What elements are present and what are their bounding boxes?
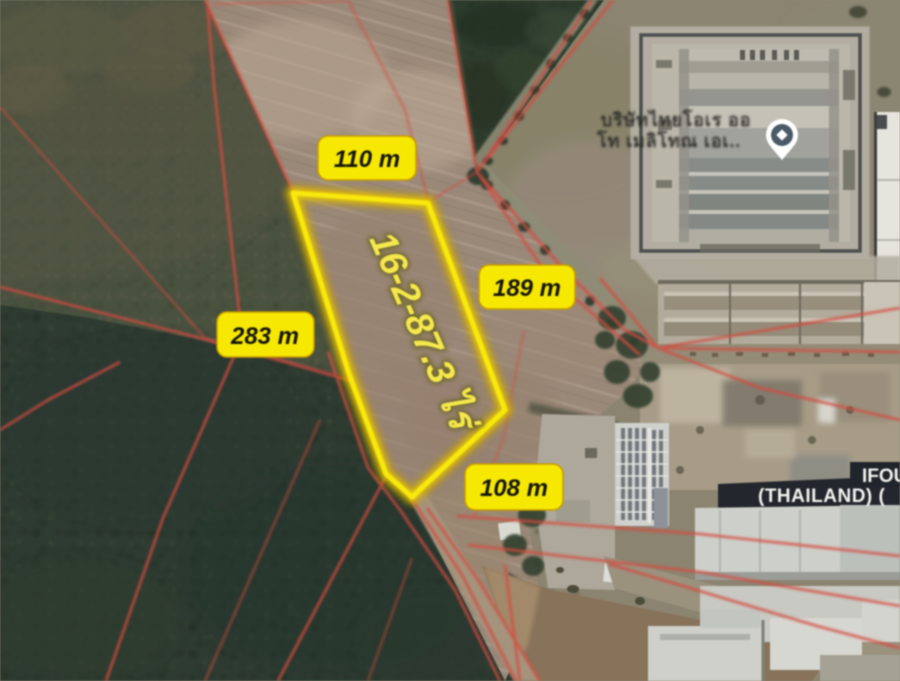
svg-text:283 m: 283 m xyxy=(230,323,299,350)
svg-text:110 m: 110 m xyxy=(334,146,400,173)
svg-text:108 m: 108 m xyxy=(480,475,548,502)
svg-text:บริษัทไทยโอเร ออ: บริษัทไทยโอเร ออ xyxy=(601,109,751,130)
svg-text:189 m: 189 m xyxy=(493,275,561,302)
svg-text:(THAILAND) (: (THAILAND) ( xyxy=(758,486,886,507)
svg-text:IFOU: IFOU xyxy=(862,466,900,487)
svg-text:โท เมลิโทณ เอเ..: โท เมลิโทณ เอเ.. xyxy=(596,130,741,151)
